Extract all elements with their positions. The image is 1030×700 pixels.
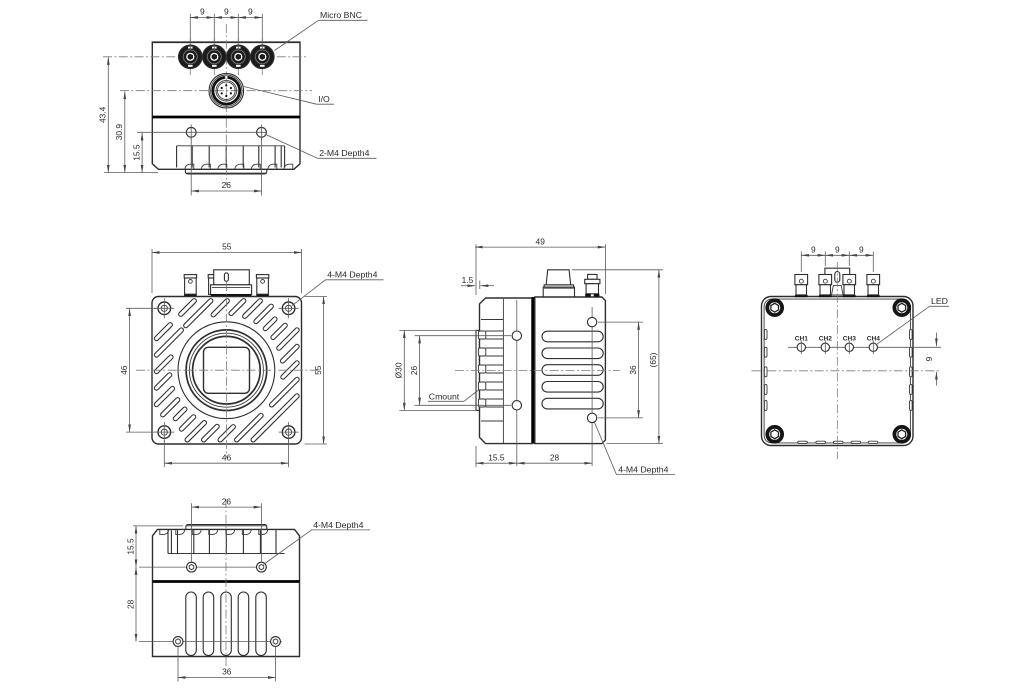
- svg-text:1.5: 1.5: [462, 275, 474, 285]
- svg-text:9: 9: [859, 245, 864, 255]
- svg-text:4-M4 Depth4: 4-M4 Depth4: [327, 270, 377, 280]
- svg-text:36: 36: [222, 667, 232, 677]
- svg-text:LED: LED: [931, 296, 948, 306]
- svg-text:28: 28: [125, 599, 135, 609]
- svg-text:55: 55: [222, 242, 232, 252]
- svg-text:55: 55: [313, 365, 323, 375]
- svg-text:I/O: I/O: [318, 94, 330, 104]
- svg-text:4-M4 Depth4: 4-M4 Depth4: [618, 464, 668, 474]
- svg-text:46: 46: [222, 452, 232, 462]
- svg-text:9: 9: [811, 245, 816, 255]
- svg-text:46: 46: [119, 365, 129, 375]
- svg-text:15.5: 15.5: [125, 538, 135, 555]
- svg-text:15.5: 15.5: [131, 144, 141, 161]
- svg-text:Ø30: Ø30: [394, 362, 404, 378]
- svg-text:9: 9: [835, 245, 840, 255]
- svg-text:(65): (65): [648, 352, 658, 367]
- svg-text:Micro BNC: Micro BNC: [320, 10, 362, 20]
- svg-text:36: 36: [628, 365, 638, 375]
- svg-text:43.4: 43.4: [98, 106, 108, 123]
- svg-text:9: 9: [200, 7, 205, 17]
- svg-text:9: 9: [248, 7, 253, 17]
- svg-text:15.5: 15.5: [488, 452, 505, 462]
- svg-text:26: 26: [222, 180, 232, 190]
- svg-text:Cmount: Cmount: [429, 392, 460, 402]
- svg-text:9: 9: [924, 356, 934, 361]
- svg-text:26: 26: [222, 496, 232, 506]
- svg-text:4-M4 Depth4: 4-M4 Depth4: [313, 520, 363, 530]
- svg-text:9: 9: [224, 7, 229, 17]
- svg-text:26: 26: [409, 366, 419, 376]
- svg-text:49: 49: [536, 236, 546, 246]
- svg-text:2-M4 Depth4: 2-M4 Depth4: [319, 148, 369, 158]
- svg-text:28: 28: [550, 452, 560, 462]
- svg-text:30.9: 30.9: [114, 124, 124, 141]
